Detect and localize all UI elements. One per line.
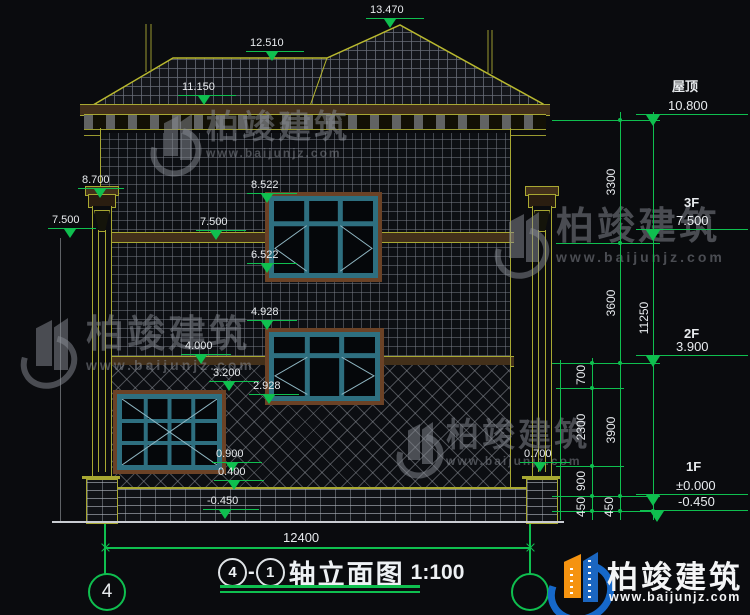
title-axis-start: 4 — [218, 558, 247, 587]
elevation-marker: 0.400 — [214, 467, 264, 490]
elevation-marker: 7.500 — [48, 215, 96, 238]
elevation-drawing-canvas: 柏竣建筑 www.baijunjz.com 柏竣建筑 www.baijunjz.… — [0, 0, 750, 615]
dim-value: 3600 — [605, 290, 617, 317]
dim-value: 450 — [575, 497, 587, 517]
dim-value: 450 — [603, 497, 615, 517]
dim-value-total: 11250 — [638, 302, 650, 334]
elevation-marker: 11.150 — [178, 82, 236, 105]
level-name: 1F — [686, 460, 701, 473]
level-elevation-marker: -0.450 — [640, 495, 748, 522]
pilaster-base-right — [526, 479, 558, 524]
brand-logo: 柏竣建筑 www.baijunjz.com — [545, 550, 750, 615]
axis-bubble-1 — [511, 573, 549, 611]
axis-bubble-4: 4 — [88, 573, 126, 611]
dim-value: 3300 — [605, 169, 617, 196]
brick-plinth — [95, 489, 548, 522]
title-underline — [220, 585, 420, 588]
dim-connector — [552, 363, 660, 364]
ground-line — [52, 521, 564, 523]
dim-chain-total — [653, 112, 654, 520]
elevation-marker: 8.522 — [247, 180, 297, 203]
title-underline-2 — [220, 591, 420, 593]
elevation-marker: 0.700 — [520, 449, 570, 472]
logo-building-icon — [564, 554, 581, 598]
watermark-url: www.baijunjz.com — [556, 249, 725, 265]
elevation-marker: 8.700 — [78, 175, 124, 198]
watermark-logo-icon — [20, 318, 80, 390]
level-name: 屋顶 — [672, 80, 698, 93]
first-floor-window — [113, 390, 226, 474]
dim-value: 3900 — [605, 417, 617, 444]
dim-connector — [552, 120, 660, 121]
elevation-marker: 2.928 — [249, 381, 299, 404]
title-separator: - — [248, 561, 255, 584]
elevation-marker: 12.510 — [246, 38, 304, 61]
watermark-top: 柏竣建筑 www.baijunjz.com — [150, 110, 350, 160]
elevation-marker: 7.500 — [196, 217, 246, 240]
watermark-logo-icon — [396, 422, 442, 478]
watermark-brand: 柏竣建筑 — [446, 418, 590, 451]
overall-dim-line — [105, 547, 530, 549]
window-frame — [117, 394, 222, 470]
title-scale: 1:100 — [411, 561, 465, 585]
dim-value: 700 — [575, 365, 587, 385]
elevation-marker: -0.450 — [203, 496, 259, 519]
elevation-marker: 13.470 — [366, 5, 424, 28]
watermark-logo-icon — [494, 212, 552, 280]
elevation-marker: 6.522 — [247, 250, 297, 273]
watermark-url: www.baijunjz.com — [206, 146, 350, 160]
brand-url: www.baijunjz.com — [609, 590, 741, 604]
logo-building-icon — [583, 552, 598, 602]
watermark-brand: 柏竣建筑 — [206, 110, 350, 143]
level-name: 3F — [684, 196, 699, 209]
elevation-marker: 4.000 — [181, 341, 231, 364]
dim-value: 900 — [575, 471, 587, 491]
watermark-logo-icon — [150, 114, 202, 178]
dim-chain-floors — [620, 112, 621, 520]
dim-value: 2300 — [575, 414, 587, 441]
pilaster-base-left — [86, 479, 118, 524]
elevation-marker: 4.928 — [247, 307, 297, 330]
title-axis-end: 1 — [256, 558, 285, 587]
dim-connector — [556, 243, 660, 244]
overall-dim-value: 12400 — [283, 530, 319, 545]
